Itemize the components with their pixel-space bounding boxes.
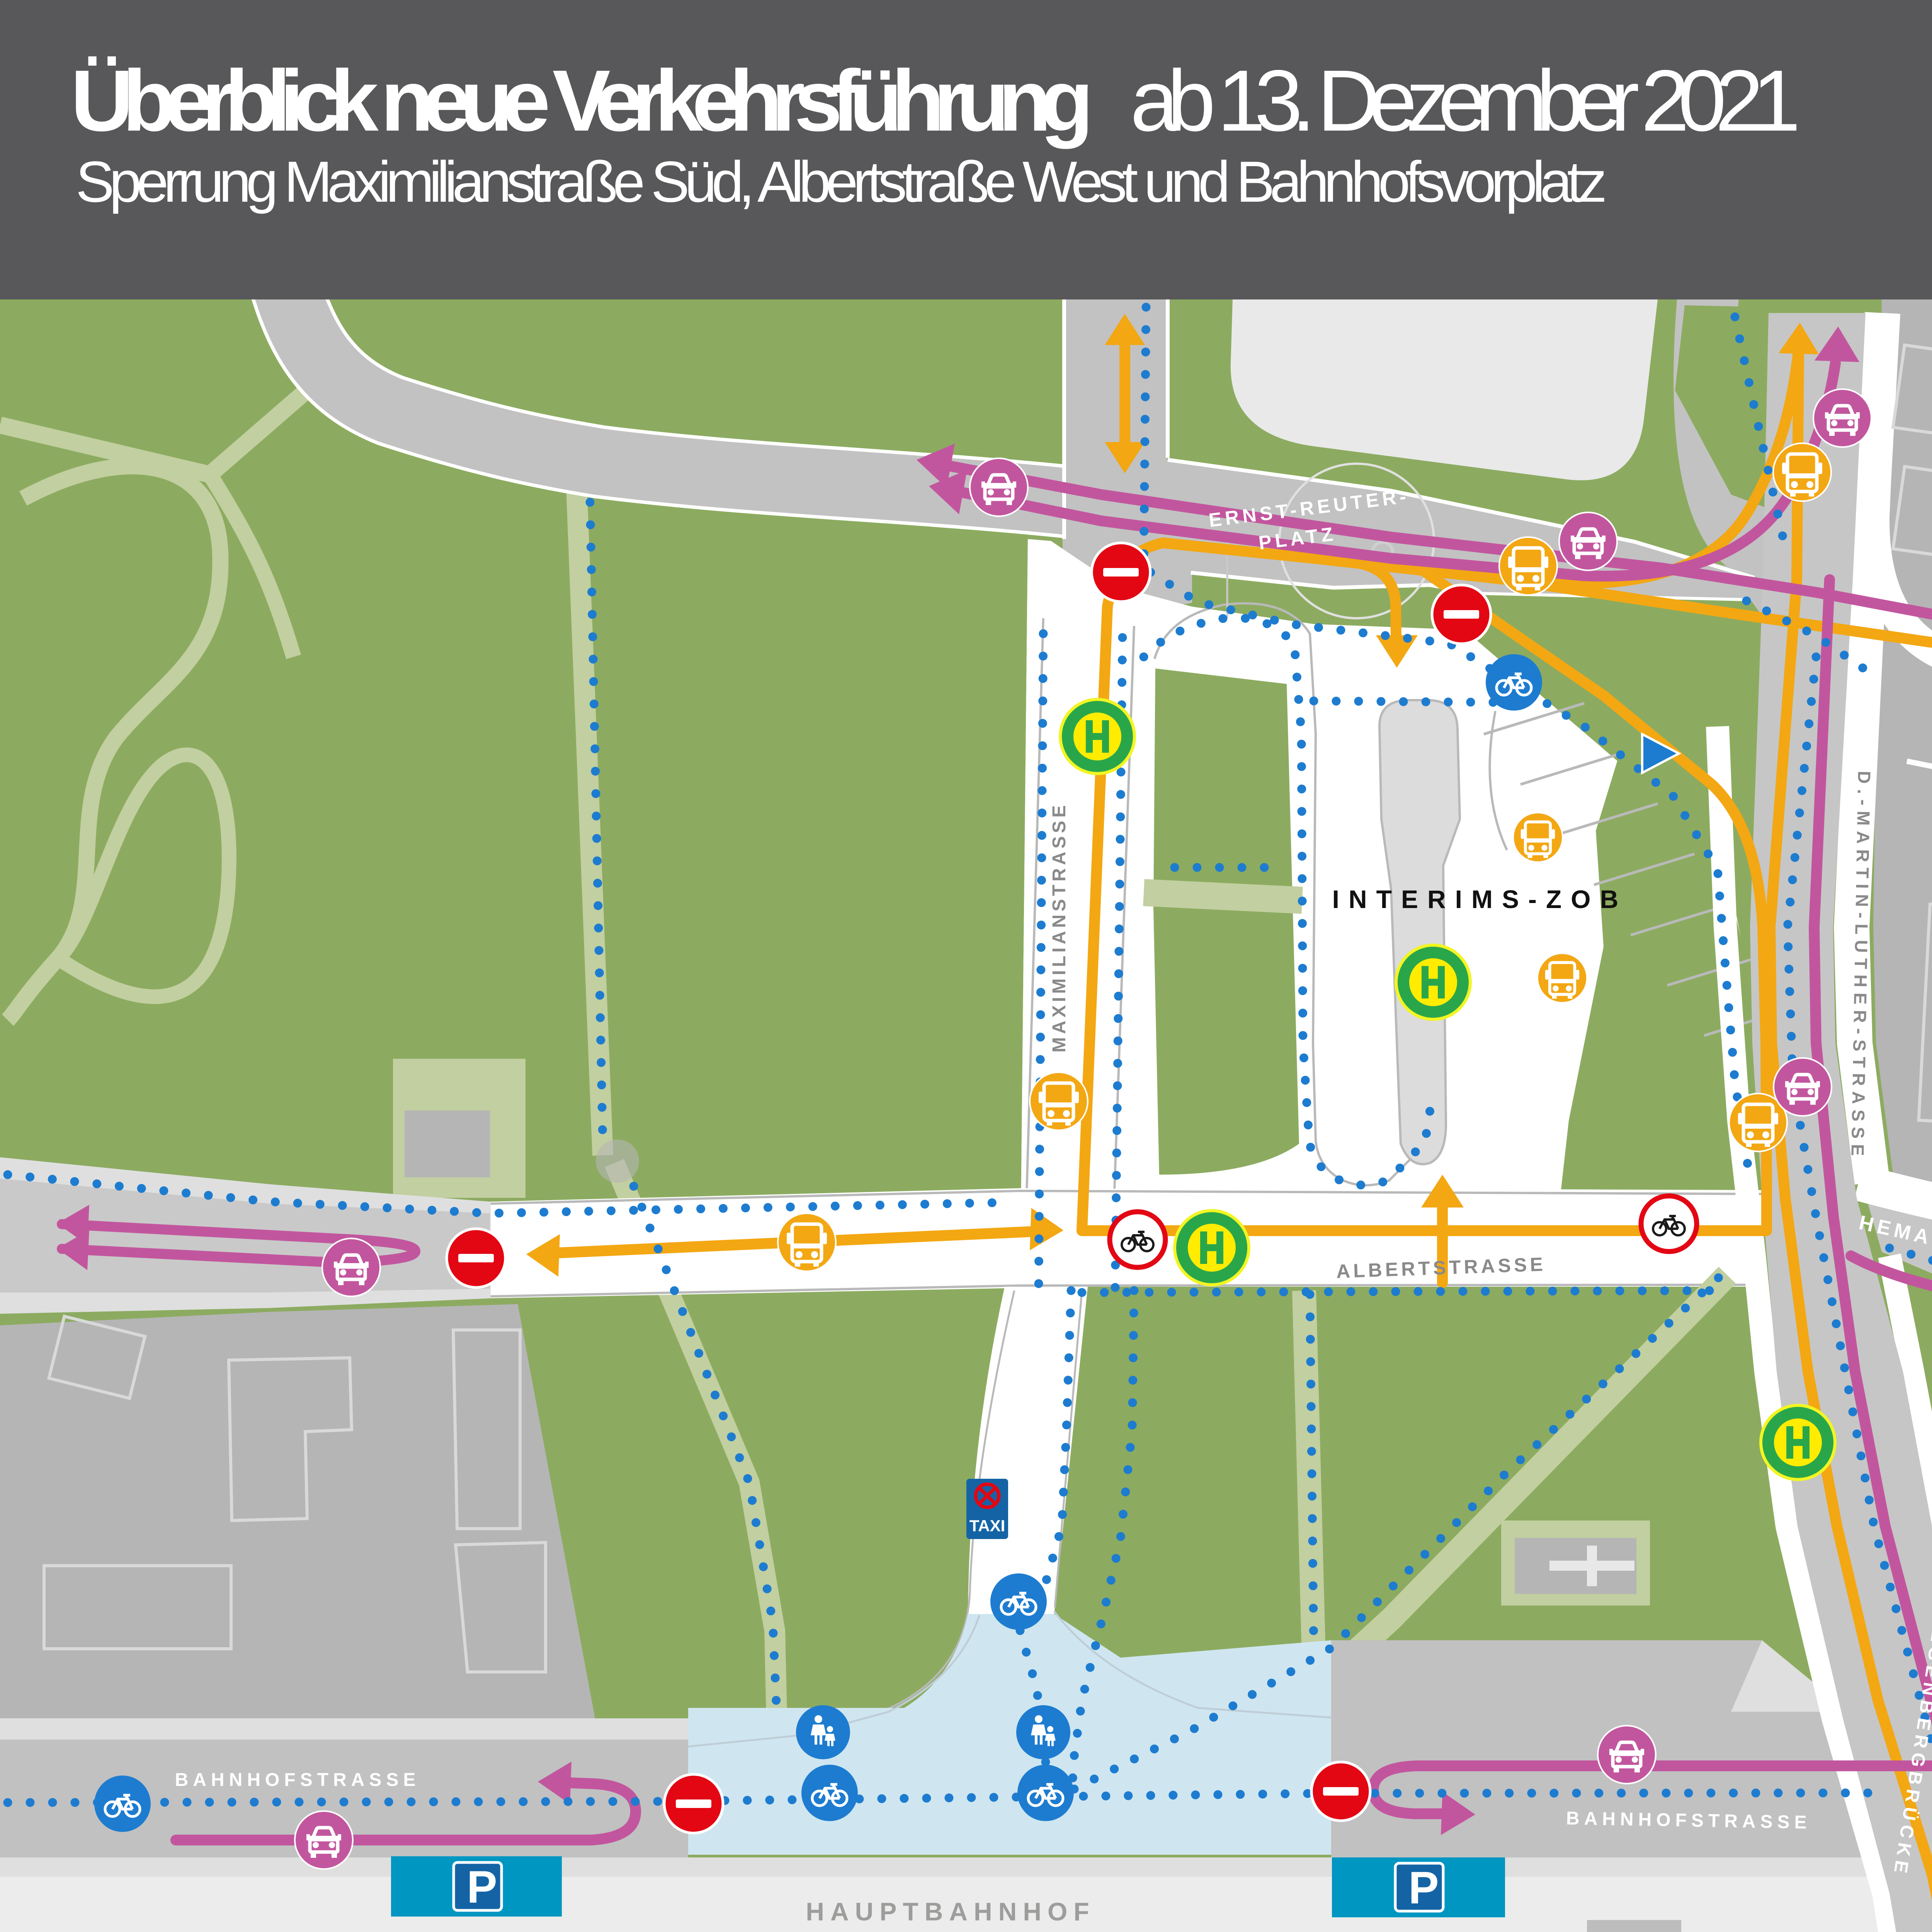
svg-text:INTERIMS-ZOB: INTERIMS-ZOB <box>1332 885 1628 913</box>
svg-text:BAHNHOFSTRASSE: BAHNHOFSTRASSE <box>175 1770 420 1790</box>
svg-text:HAUPTBAHNHOF: HAUPTBAHNHOF <box>806 1897 1095 1926</box>
svg-text:ab 13. Dezember 2021: ab 13. Dezember 2021 <box>1130 52 1801 149</box>
svg-text:Sperrung Maximilianstraße Süd,: Sperrung Maximilianstraße Süd, Albertstr… <box>76 149 1607 214</box>
svg-text:MAXIMILIANSTRASSE: MAXIMILIANSTRASSE <box>1049 802 1070 1053</box>
svg-text:Überblick neue Verkehrsführung: Überblick neue Verkehrsführung <box>71 52 1094 149</box>
svg-text:BAHNHOFSTRASSE: BAHNHOFSTRASSE <box>1566 1808 1812 1833</box>
